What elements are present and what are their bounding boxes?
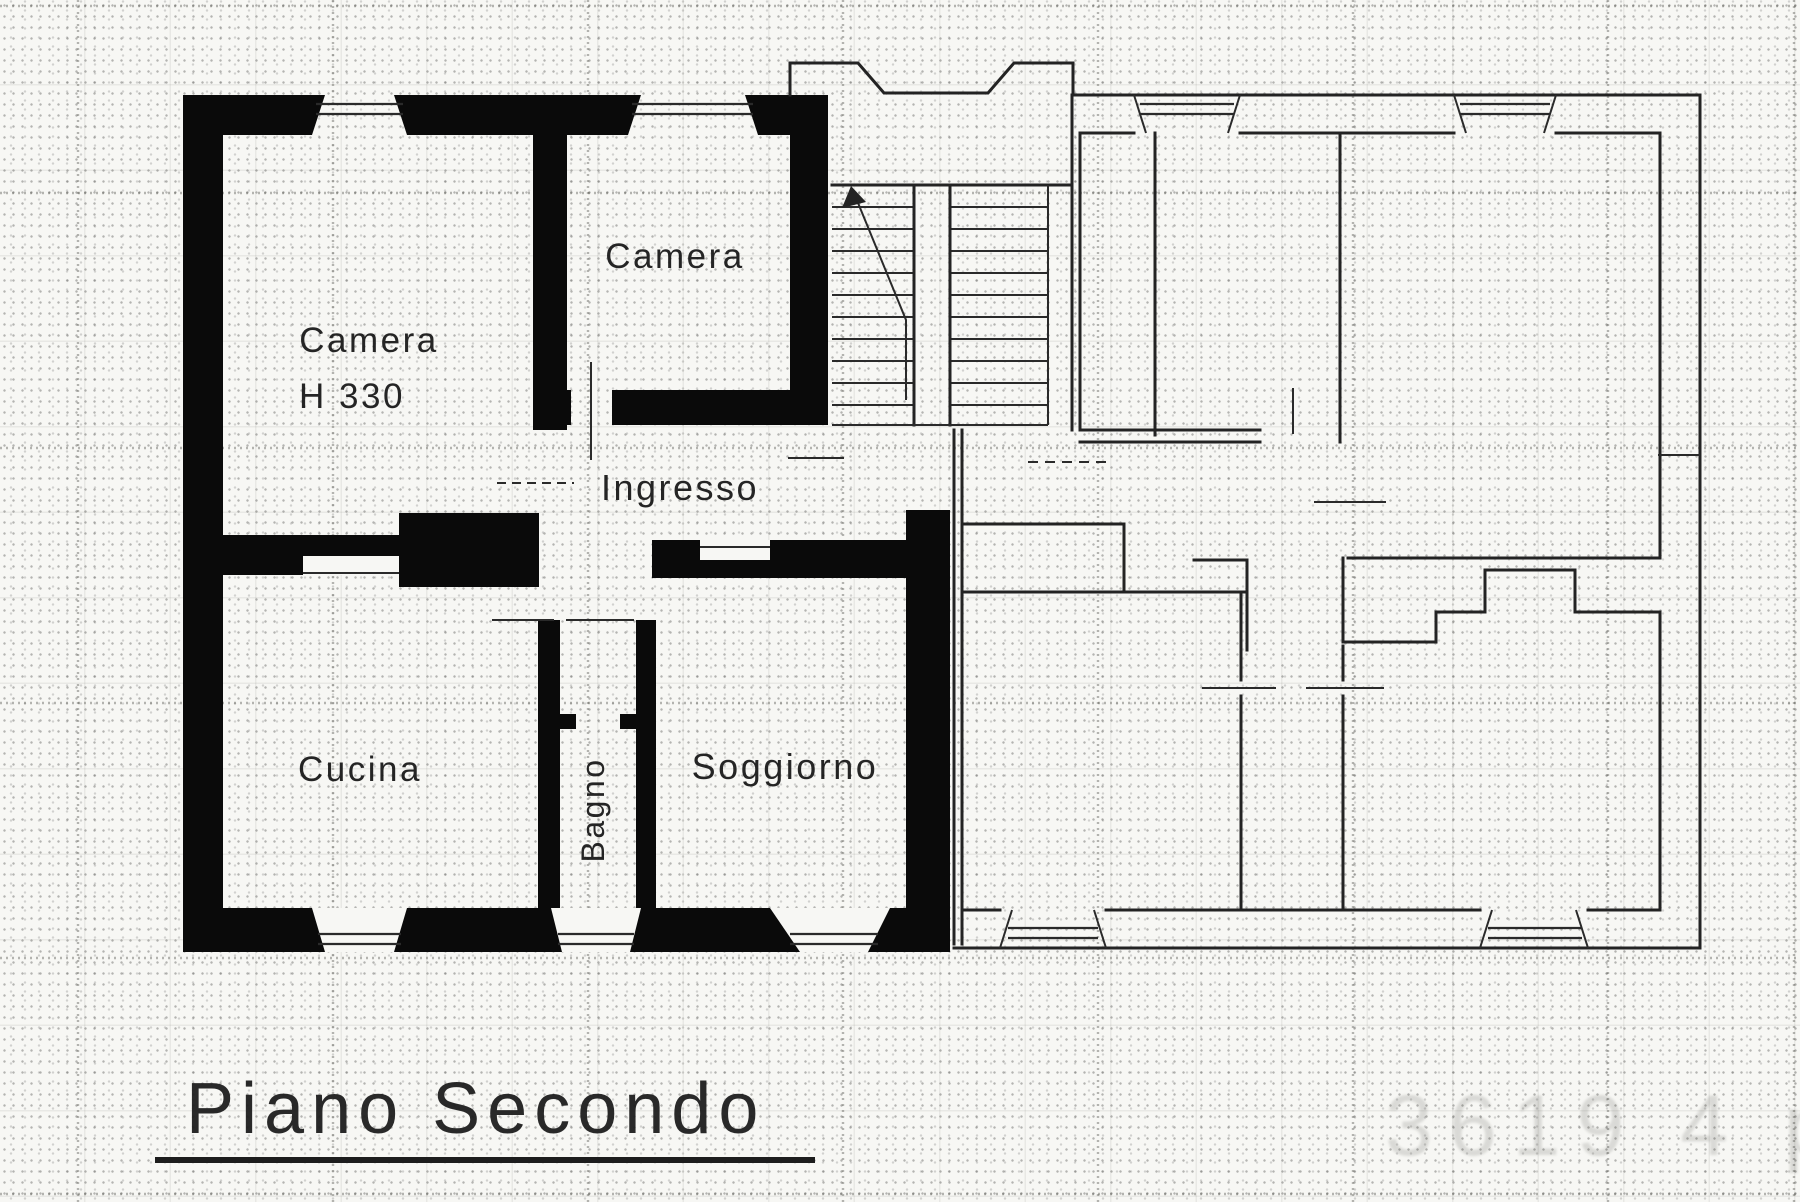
window-top-2 xyxy=(632,104,753,114)
bagno-west-wall xyxy=(538,620,560,912)
room-label-camera-grande-height: H 330 xyxy=(299,377,405,416)
camera-door-stub xyxy=(533,390,571,425)
stair-roof-projection xyxy=(790,63,1073,95)
room-label-soggiorno: Soggiorno xyxy=(692,746,879,787)
room-label-cucina: Cucina xyxy=(298,750,422,789)
stairwell-side-wall xyxy=(790,95,828,425)
title-underline xyxy=(155,1157,815,1163)
bagno-door-tick xyxy=(620,714,636,729)
window-bottom-1 xyxy=(312,908,407,952)
stair-treads-right-flight xyxy=(950,207,1048,405)
floor-plan-scan-canvas: Camera H 330 Camera Ingresso Cucina Bagn… xyxy=(0,0,1800,1202)
top-wall-segment xyxy=(394,95,641,135)
stamp-number: 3619 4 p xyxy=(1385,1078,1800,1174)
right-outer-wall xyxy=(906,510,950,952)
camera-south-wall xyxy=(612,390,828,425)
room-label-camera-piccola: Camera xyxy=(605,237,744,276)
room-label-bagno: Bagno xyxy=(575,757,611,862)
left-outer-wall xyxy=(183,95,223,952)
room-label-ingresso: Ingresso xyxy=(601,467,759,508)
grid-layer xyxy=(0,0,1800,1202)
top-wall-segment xyxy=(183,95,325,135)
soggiorno-north-wall xyxy=(652,540,906,578)
bedroom-divider-wall xyxy=(533,95,567,430)
subject-apartment-walls xyxy=(183,95,950,952)
window-bottom-2 xyxy=(551,908,641,952)
floor-plan-drawing: Camera H 330 Camera Ingresso Cucina Bagn… xyxy=(0,0,1800,1202)
neighbor-window-top-2 xyxy=(1454,95,1556,133)
room-label-camera-grande: Camera xyxy=(299,321,438,360)
stair-treads-left-flight xyxy=(832,207,914,405)
stairwell xyxy=(790,63,1108,462)
bagno-door-tick xyxy=(560,714,576,729)
neighbor-apartment-walls xyxy=(954,95,1700,948)
drawing-title-block: Piano Secondo xyxy=(155,1069,815,1163)
flue-block xyxy=(399,513,539,587)
stair-up-arrow xyxy=(842,186,906,400)
bagno-east-wall xyxy=(636,620,656,912)
floor-title: Piano Secondo xyxy=(186,1069,765,1149)
neighbor-window-top-1 xyxy=(1134,95,1240,133)
neighbor-window-bottom-2 xyxy=(1480,910,1588,948)
neighbor-window-bottom-1 xyxy=(1000,910,1106,948)
window-top-1 xyxy=(316,104,403,114)
soggiorno-door-recess xyxy=(700,540,770,560)
